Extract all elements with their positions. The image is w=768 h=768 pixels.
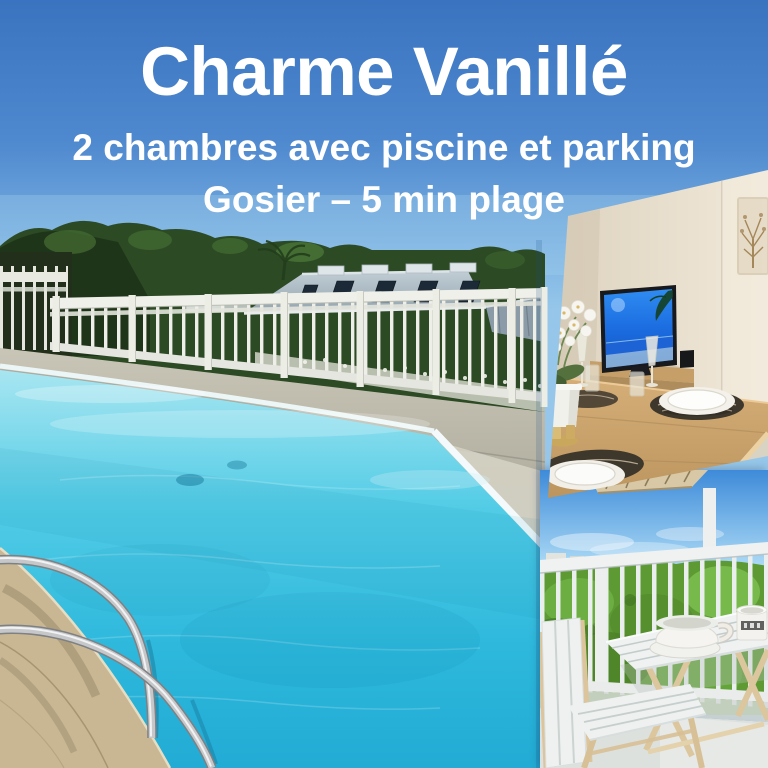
tv (600, 285, 677, 377)
water-smudge (176, 474, 204, 486)
water-smudge (227, 461, 247, 470)
balcony-photo (540, 470, 768, 768)
speaker (680, 350, 694, 368)
listing-location: Gosier – 5 min plage (0, 174, 768, 226)
listing-subtitle: 2 chambres avec piscine et parking (0, 122, 768, 174)
mug (737, 606, 767, 641)
listing-cover-image: Charme Vanillé 2 chambres avec piscine e… (0, 0, 768, 768)
listing-title: Charme Vanillé (0, 36, 768, 108)
caption-block: Charme Vanillé 2 chambres avec piscine e… (0, 36, 768, 226)
